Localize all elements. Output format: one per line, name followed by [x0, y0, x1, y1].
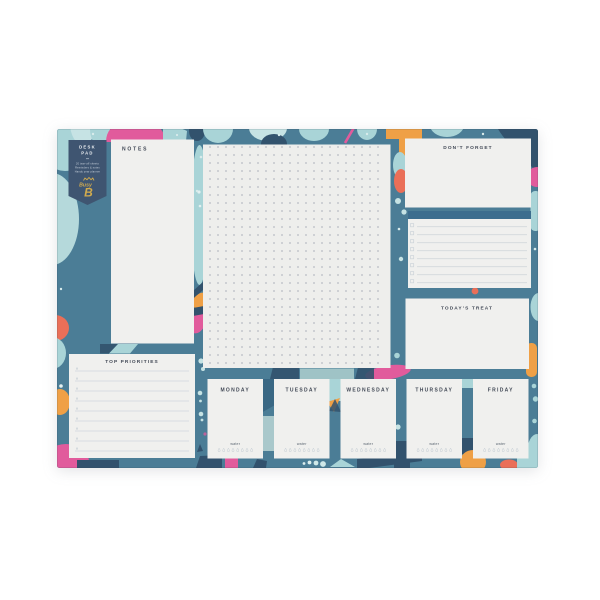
svg-text:water: water — [230, 442, 240, 446]
svg-text:FRIDAY: FRIDAY — [488, 388, 514, 394]
svg-text:Reminders & notes: Reminders & notes — [75, 167, 100, 170]
svg-text:PAD: PAD — [81, 151, 93, 156]
svg-text:TOP PRIORITIES: TOP PRIORITIES — [105, 359, 159, 365]
svg-text:B: B — [84, 186, 93, 200]
svg-text:water: water — [363, 442, 373, 446]
svg-text:MONDAY: MONDAY — [220, 388, 250, 394]
svg-text:DESK: DESK — [79, 145, 96, 150]
svg-text:TUESDAY: TUESDAY — [285, 388, 318, 394]
svg-text:water: water — [297, 442, 307, 446]
svg-text:Handy year planner: Handy year planner — [75, 171, 100, 174]
svg-text:TODAY’S TREAT: TODAY’S TREAT — [441, 306, 493, 312]
svg-text:DON’T FORGET: DON’T FORGET — [443, 145, 492, 151]
svg-text:NOTES: NOTES — [122, 147, 148, 153]
svg-text:20 tear-off sheets: 20 tear-off sheets — [76, 163, 100, 166]
svg-text:water: water — [496, 442, 506, 446]
svg-text:THURSDAY: THURSDAY — [415, 388, 453, 394]
svg-text:water: water — [429, 442, 439, 446]
svg-text:WEDNESDAY: WEDNESDAY — [346, 388, 390, 394]
